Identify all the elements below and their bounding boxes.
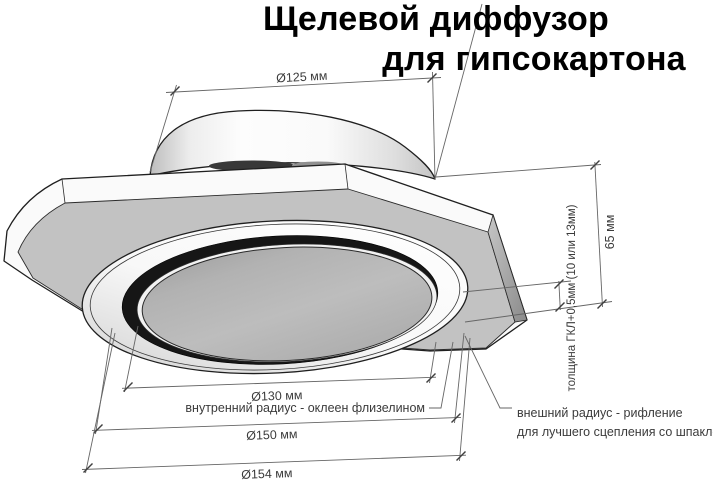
inner-radius-annotation: внутренний радиус - оклеен флизелином <box>185 401 425 415</box>
diffuser-technical-drawing: Щелевой диффузор для гипсокартона Ø125 м… <box>0 0 713 500</box>
drawing-title-line1: Щелевой диффузор <box>263 0 609 38</box>
drawing-title-line2: для гипсокартона <box>382 40 686 78</box>
drawing-canvas: Щелевой диффузор для гипсокартона Ø125 м… <box>0 0 713 500</box>
outer-radius-annotation-line1: внешний радиус - рифление <box>517 406 683 420</box>
dim154-label: Ø154 мм <box>241 466 293 482</box>
dimthk-label: толщина ГКЛ+0,5мм (10 или 13мм) <box>566 204 578 391</box>
outer-radius-annotation-line2: для лучшего сцепления со шпаклёвкой <box>517 425 713 439</box>
dim125-label: Ø125 мм <box>276 69 328 86</box>
dim65-label: 65 мм <box>603 215 617 250</box>
dim150-label: Ø150 мм <box>246 427 298 443</box>
